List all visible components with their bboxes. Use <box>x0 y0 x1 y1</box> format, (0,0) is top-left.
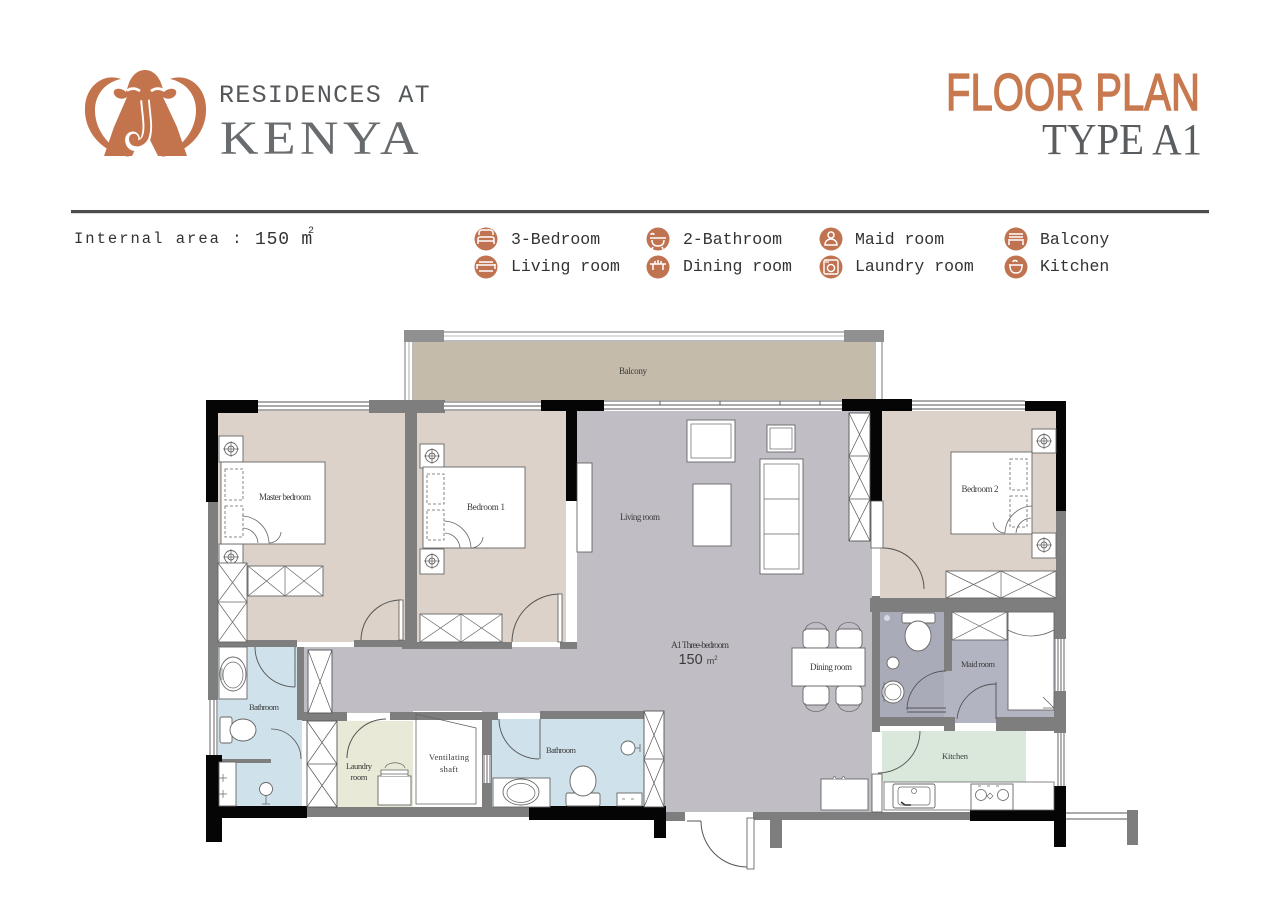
svg-text:A1 Three-bedroom: A1 Three-bedroom <box>671 641 730 651</box>
svg-text:Kitchen: Kitchen <box>942 751 969 761</box>
svg-text:Balcony: Balcony <box>619 366 648 376</box>
svg-text:Laundry room: Laundry room <box>855 257 974 276</box>
svg-text:TYPE A1: TYPE A1 <box>1042 115 1202 164</box>
svg-text:Dining room: Dining room <box>810 662 852 672</box>
svg-text:2-Bathroom: 2-Bathroom <box>683 230 782 249</box>
svg-text:Dining room: Dining room <box>683 257 792 276</box>
svg-text:Kitchen: Kitchen <box>1040 257 1109 276</box>
svg-text:Bathroom: Bathroom <box>546 745 576 755</box>
svg-text:Living room: Living room <box>511 257 620 276</box>
svg-text:Balcony: Balcony <box>1040 230 1109 249</box>
svg-text:FLOOR PLAN: FLOOR PLAN <box>946 64 1200 122</box>
svg-text:room: room <box>351 772 368 782</box>
svg-text:Bedroom 1: Bedroom 1 <box>467 502 505 512</box>
svg-text:Maid room: Maid room <box>961 659 995 669</box>
svg-text:Laundry: Laundry <box>346 761 373 771</box>
svg-text:3-Bedroom: 3-Bedroom <box>511 230 600 249</box>
svg-text:RESIDENCES AT: RESIDENCES AT <box>219 81 431 110</box>
svg-text:shaft: shaft <box>440 764 459 774</box>
svg-text:Internal area :: Internal area : <box>74 230 244 248</box>
svg-text:150 m: 150 m <box>255 230 313 250</box>
svg-text:Bedroom 2: Bedroom 2 <box>962 484 999 494</box>
svg-text:2: 2 <box>308 226 314 237</box>
svg-text:Maid room: Maid room <box>855 230 944 249</box>
svg-text:Living room: Living room <box>620 512 660 522</box>
svg-text:KENYA: KENYA <box>220 112 423 165</box>
svg-text:Ventilating: Ventilating <box>429 752 470 762</box>
svg-text:Master bedroom: Master bedroom <box>259 492 311 502</box>
svg-text:Bathroom: Bathroom <box>249 702 279 712</box>
